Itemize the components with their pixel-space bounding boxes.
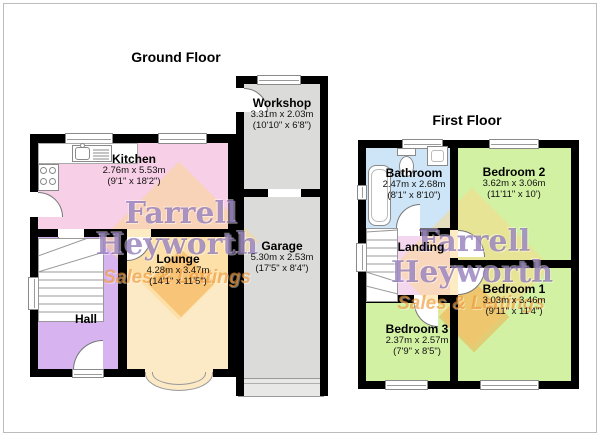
garage-label: Garage 5.30m x 2.53m (17'5" x 8'4"): [251, 240, 314, 274]
bedroom3-label: Bedroom 3 2.37m x 2.57m (7'9" x 8'5"): [386, 323, 449, 357]
kitchen-window-2: [158, 133, 207, 144]
wall: [301, 189, 320, 197]
hob-ring-icon: [49, 178, 56, 185]
front-door-threshold: [72, 369, 104, 378]
tap-icon: [80, 143, 85, 148]
kitchen-label: Kitchen 2.76m x 5.53m (9'1" x 18'2"): [103, 153, 166, 187]
kitchen-door-opening: [30, 192, 38, 217]
lounge-label: Lounge 4.28m x 3.47m (14'1" x 11'5"): [147, 253, 210, 287]
wall: [450, 148, 458, 230]
bathroom-side-window: [357, 185, 367, 200]
garage-door: [238, 378, 324, 397]
bedroom2-label: Bedroom 2 3.62m x 3.06m (11'11" x 10'): [483, 166, 546, 200]
wall: [358, 140, 579, 148]
hall-label: Hall: [75, 313, 97, 326]
toilet-cistern-icon: [397, 148, 416, 156]
bathroom-label: Bathroom 2.47m x 2.68m (8'1" x 8'10"): [383, 167, 446, 201]
first-floor-title: First Floor: [432, 112, 501, 128]
bedroom3-window: [385, 380, 428, 390]
wall: [30, 229, 58, 237]
workshop-label: Workshop 3.31m x 2.03m (10'10" x 6'8"): [251, 97, 314, 131]
basin-bowl: [431, 150, 444, 162]
floor-plan: Ground Floor: [0, 0, 600, 436]
sink-bowl-icon: [75, 147, 90, 160]
wall: [30, 369, 73, 377]
bedroom1-label: Bedroom 1 3.03m x 3.46m (9'11" x 11'4"): [483, 283, 546, 317]
garage-floor: [244, 197, 320, 378]
wall: [30, 134, 38, 377]
bedroom1-window: [480, 380, 539, 390]
hob-ring-icon: [40, 167, 47, 174]
hob-ring-icon: [40, 178, 47, 185]
wall: [571, 140, 579, 389]
staircase: [38, 238, 104, 322]
workshop-door-opening: [236, 88, 244, 112]
ground-floor-title: Ground Floor: [131, 49, 220, 65]
bedroom2-window: [489, 139, 539, 149]
workshop-window: [257, 75, 301, 85]
wall: [320, 76, 328, 396]
watermark-farrell: Farrell: [125, 196, 238, 231]
hob-ring-icon: [49, 167, 56, 174]
wall: [244, 189, 268, 197]
landing-label: Landing: [398, 241, 445, 254]
